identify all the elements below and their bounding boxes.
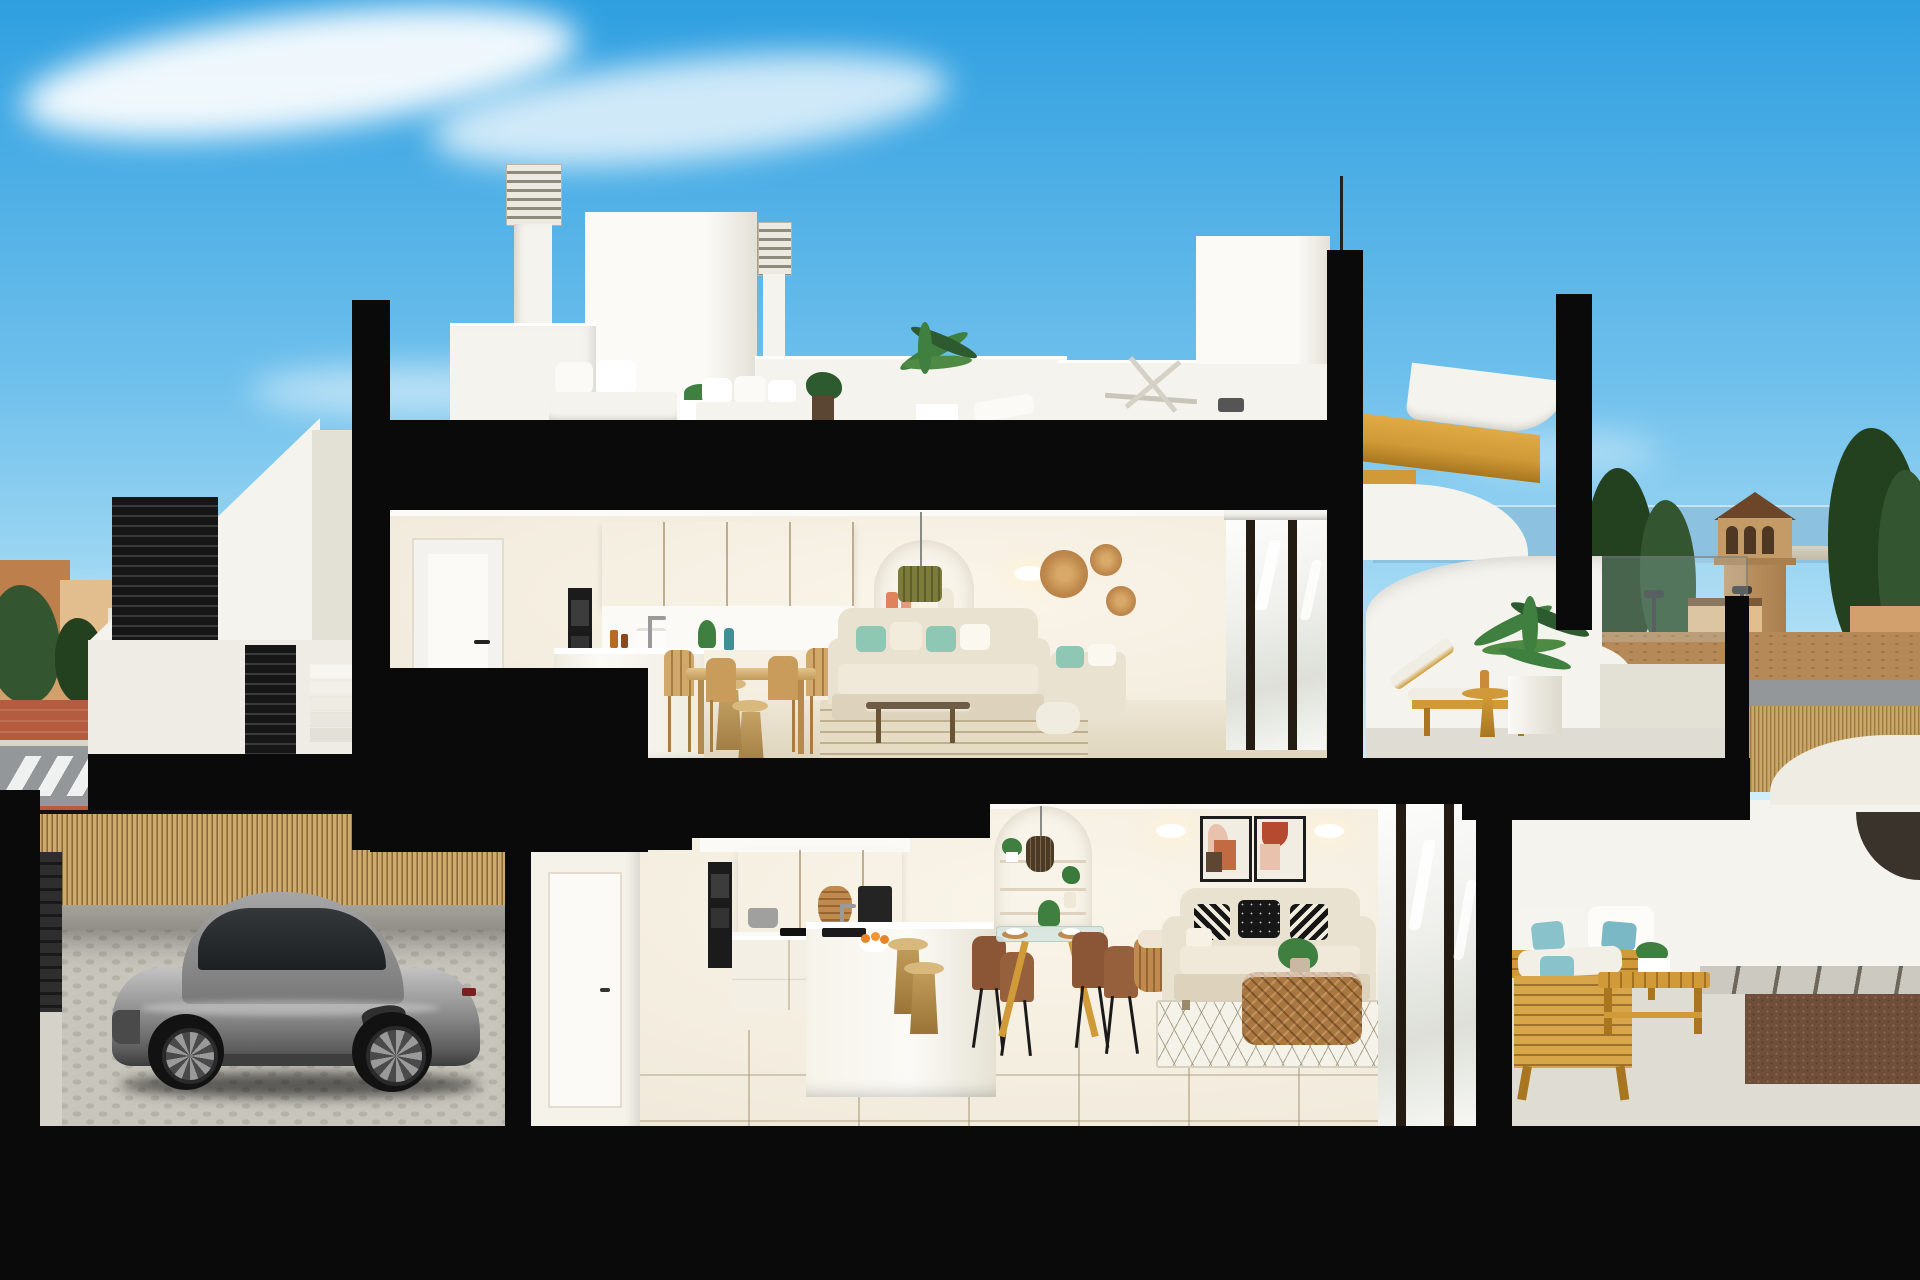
cut-right-edge (1556, 294, 1592, 630)
kitchen-stool (904, 962, 944, 975)
niche-plant (1062, 866, 1080, 884)
oil-bottle (610, 630, 618, 648)
kitchen-stool-legs (738, 712, 764, 764)
woven-wall-basket (1106, 586, 1136, 616)
rooftop-sofa-cushion (734, 376, 766, 404)
sun-lounger-leg (1424, 708, 1430, 736)
sofa-pillow-teal (1056, 646, 1084, 668)
woven-wall-basket (1090, 544, 1122, 576)
pendant-lamp (898, 566, 942, 602)
dining-chair-legs (710, 700, 713, 752)
louvered-gate (245, 645, 296, 757)
glass-door-frame (1246, 520, 1255, 750)
dining-chair-legs (792, 700, 795, 752)
pillow-bw-pattern (1290, 904, 1328, 940)
glass-door-frame (1444, 800, 1454, 1128)
chimney-louver-cap (758, 222, 792, 276)
chimney-louver-cap (506, 164, 562, 226)
teal-vase (724, 628, 734, 650)
sofa-pillow (960, 624, 990, 650)
sofa-pillow-teal (926, 626, 956, 652)
car-wheel-rim (162, 1028, 218, 1084)
island-faucet (648, 616, 652, 648)
cut-left-edge (0, 790, 40, 1130)
rooftop-object (1218, 398, 1244, 412)
outdoor-table-leg (1694, 988, 1702, 1034)
car-taillight (462, 988, 476, 996)
outdoor-sofa-back-view (1514, 976, 1632, 1068)
cut-roof-slab (352, 420, 1360, 510)
watchtower-arch (1726, 526, 1738, 554)
dining-chair (768, 656, 798, 700)
antenna (1340, 176, 1343, 252)
coffee-table-leg (950, 709, 955, 743)
pillow-black (1238, 900, 1280, 938)
orange-fruit (871, 932, 880, 941)
glass-door-frame (1288, 520, 1297, 750)
cut-front-terrace-slab (88, 754, 374, 810)
lower-oven-screen (711, 908, 729, 928)
dining-chair-legs (810, 696, 813, 754)
sofa-pillow-teal (856, 626, 886, 652)
rooftop-sofa-cushion (639, 363, 673, 393)
cut-foundation-slab (0, 1126, 1920, 1280)
sofa-pillow (1088, 644, 1116, 666)
counter-plant (698, 620, 716, 648)
palm-frond (1522, 596, 1538, 656)
kitchen-stool-legs (910, 974, 938, 1034)
sofa-pillow (890, 622, 922, 650)
dining-chair-brown (1072, 932, 1108, 988)
kitchen-stool (732, 700, 768, 712)
island-faucet (840, 904, 856, 908)
wall-sconce (1156, 824, 1186, 838)
art-shape (1206, 852, 1222, 872)
pendant-cord (920, 512, 922, 568)
niche-pot (1006, 852, 1018, 862)
orange-fruit (861, 934, 870, 943)
outdoor-table-stretcher (1604, 1012, 1702, 1018)
lower-interior-door (548, 872, 622, 1108)
car-front-bumper (112, 1010, 140, 1044)
rooftop-palm-frond (918, 322, 932, 374)
car-wheel-rim (366, 1026, 426, 1086)
peninsula-sink (822, 928, 866, 937)
door-handle (600, 988, 610, 992)
dining-chair-legs (668, 696, 671, 752)
outdoor-pillow-aqua (1531, 920, 1566, 951)
cut-terrace-edge-column (1725, 596, 1749, 764)
niche-shelf (1000, 888, 1086, 891)
kitchen-stool (888, 938, 928, 951)
rooftop-sofa-cushion (768, 380, 796, 404)
woven-wall-basket (1040, 550, 1088, 598)
cut-mid-slab (990, 758, 1462, 804)
rattan-coffee-table (1242, 972, 1362, 1045)
cut-right-partition (1327, 250, 1363, 762)
louvered-gate (112, 497, 218, 647)
dining-table-leg (698, 680, 704, 754)
door-handle (474, 640, 490, 644)
rooftop-sofa-base (696, 402, 808, 422)
table-plant (1038, 900, 1060, 926)
niche-vessel (1064, 892, 1076, 908)
dining-table-leg (798, 680, 804, 754)
stair-underside (1358, 484, 1528, 560)
pendant-cord (1040, 806, 1042, 838)
coffee-table-leg (876, 709, 881, 743)
outdoor-coffee-table (1598, 972, 1710, 988)
art-shape (1260, 844, 1280, 870)
coffee-table-top (866, 702, 970, 709)
rooftop-sofa-cushion (702, 378, 732, 404)
watchtower-arch (1762, 526, 1774, 554)
dining-chair (706, 658, 736, 702)
dining-chair-legs (688, 696, 691, 752)
architectural-cross-section-scene (0, 0, 1920, 1280)
cooking-pot (748, 908, 778, 928)
stair-bulkhead-roof (1058, 360, 1330, 425)
rooftop-sofa-cushion (596, 360, 636, 394)
penthouse-box (1196, 236, 1330, 364)
upper-sofa-seat (838, 664, 1038, 694)
lower-sofa-seat (1180, 946, 1360, 974)
wall-sconce (1314, 824, 1344, 838)
sofa-foot (1182, 1000, 1190, 1010)
watchtower-arch (1744, 526, 1756, 554)
upper-kitchen-cabinets (602, 522, 854, 606)
cut-garage-kitchen-wall (505, 806, 531, 1130)
pillow-white (1186, 928, 1212, 948)
oil-bottle (621, 634, 628, 648)
paver-strip (1700, 966, 1920, 994)
upper-oven-screen (571, 600, 589, 626)
gravel-bed (1745, 994, 1920, 1084)
island-faucet (648, 616, 666, 620)
plate (1006, 928, 1024, 935)
rattan-pendant-lantern (1026, 836, 1054, 872)
rooftop-plant-pot (812, 396, 834, 422)
rooftop-sofa-cushion (555, 362, 593, 394)
lower-oven-screen (711, 874, 729, 898)
glass-door-frame (1396, 800, 1406, 1128)
rooftop-sofa-base (549, 392, 677, 422)
palm-planter (1508, 676, 1562, 734)
glass-door-frame-post (1476, 796, 1512, 1130)
dining-chair-brown (1104, 946, 1138, 998)
chimney-shaft (514, 224, 552, 328)
outdoor-table-leg (1604, 988, 1612, 1034)
pouf (1036, 702, 1080, 734)
cut-mid-slab (648, 758, 990, 838)
